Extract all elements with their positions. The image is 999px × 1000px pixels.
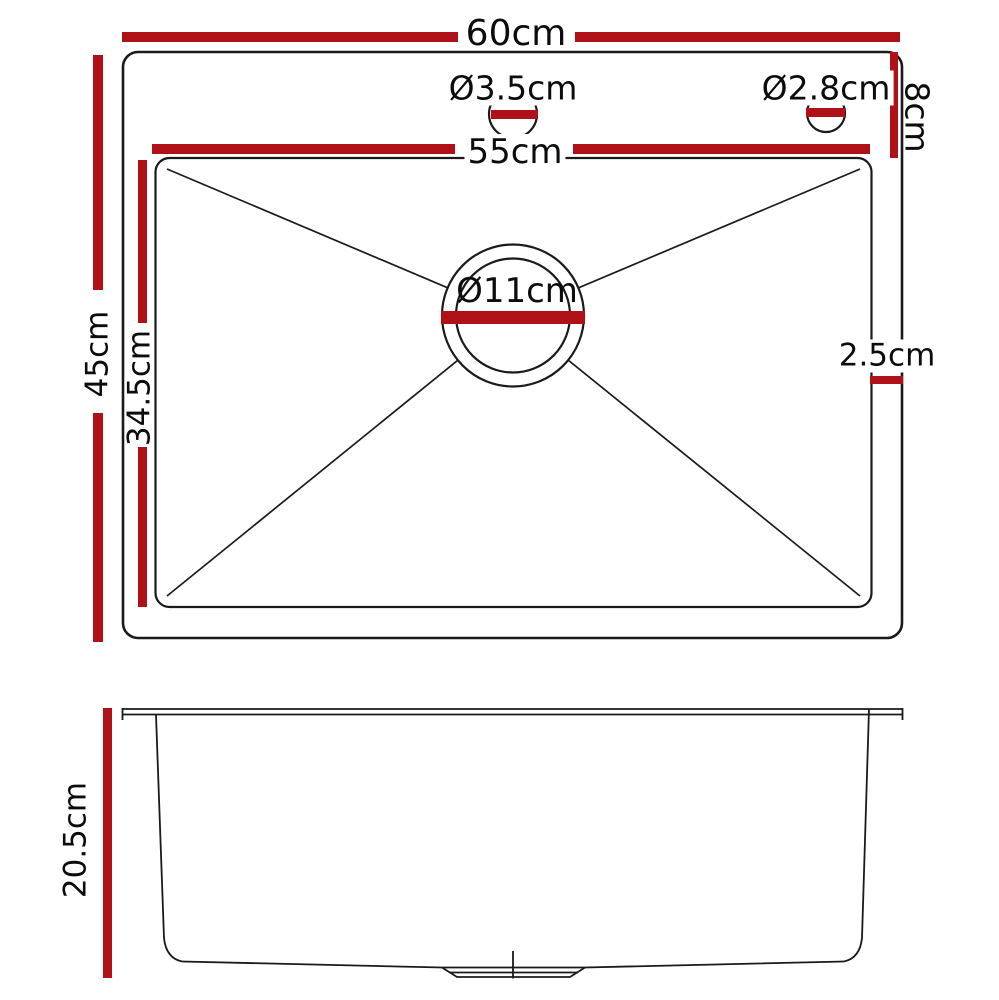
side-bowl-right-wall [844,709,869,962]
label-overall-depth: 45cm [83,311,114,398]
dim-bar-34-5cm-bottom [138,447,147,607]
label-drain-diameter: Ø11cm [456,274,578,308]
side-bowl-left-wall [156,715,182,962]
dim-bar-34-5cm-top [138,160,147,323]
dim-bar-drain-11cm [441,311,585,324]
label-bowl-width: 55cm [464,134,565,170]
dim-bar-45cm-bottom [93,413,103,642]
dim-bar-tap-hole-2-8cm [806,108,845,117]
side-view [122,708,903,979]
dim-bar-2-5cm [870,376,903,384]
dim-bar-60cm-right [575,32,900,42]
dim-bar-45cm-top [93,55,103,290]
label-sink-depth: 20.5cm [61,782,92,898]
label-side-gap: 2.5cm [836,340,939,373]
label-tap-hole-right: Ø2.8cm [759,71,894,106]
dim-bar-55cm-right [573,144,870,154]
dim-bar-55cm-left [152,144,455,154]
label-tap-ledge-depth: 8cm [901,81,934,152]
dim-bar-60cm-left [122,32,458,42]
dim-bar-tap-hole-3-5cm [491,110,538,119]
dim-bar-20-5cm [103,708,112,978]
label-overall-width: 60cm [466,16,567,52]
label-bowl-depth: 34.5cm [125,330,156,446]
label-tap-hole-center: Ø3.5cm [446,71,581,106]
sink-dimension-diagram: 60cm Ø3.5cm Ø2.8cm 8cm 55cm 45cm 34.5cm … [0,0,999,1000]
